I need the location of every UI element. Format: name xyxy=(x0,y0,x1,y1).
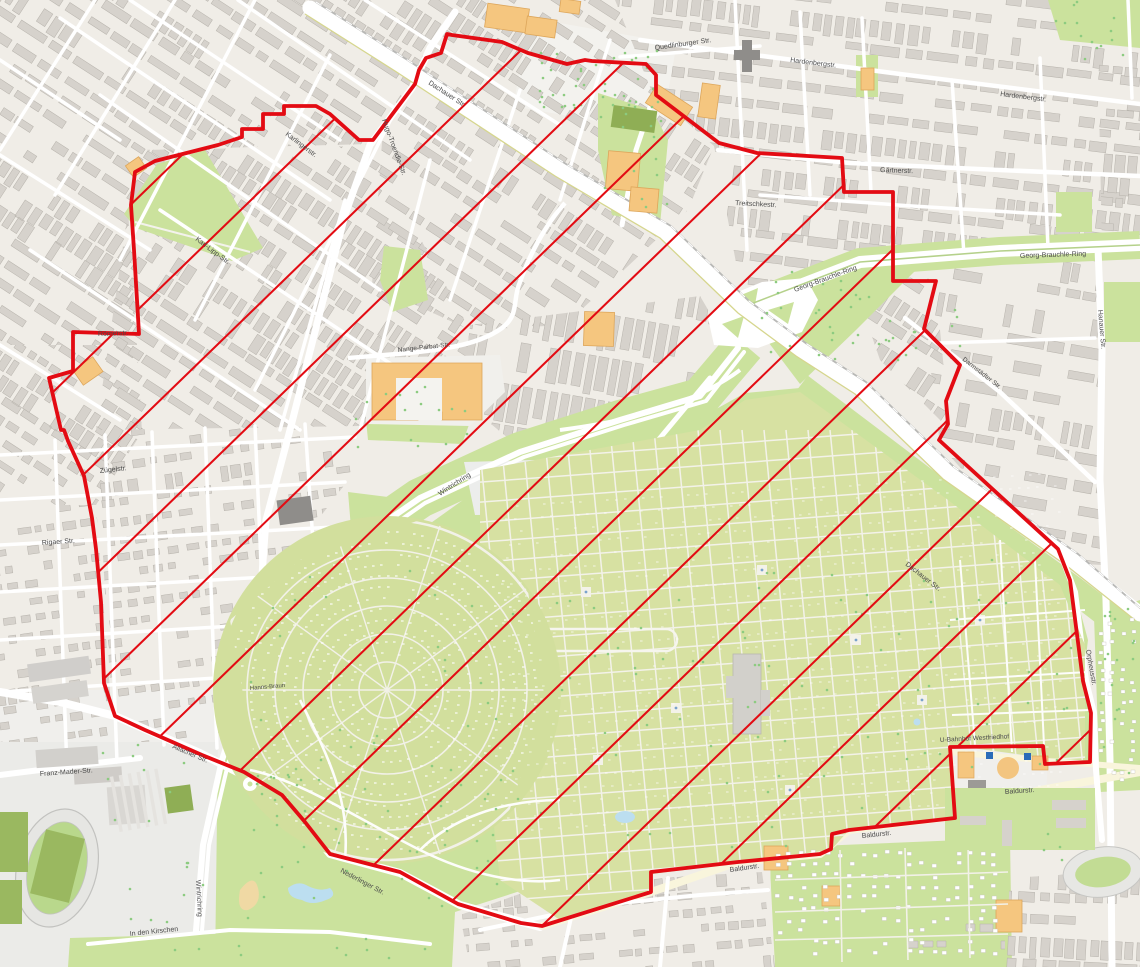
svg-text:Gärtnerstr.: Gärtnerstr. xyxy=(880,167,913,175)
svg-text:Römerstr.: Römerstr. xyxy=(98,330,129,338)
